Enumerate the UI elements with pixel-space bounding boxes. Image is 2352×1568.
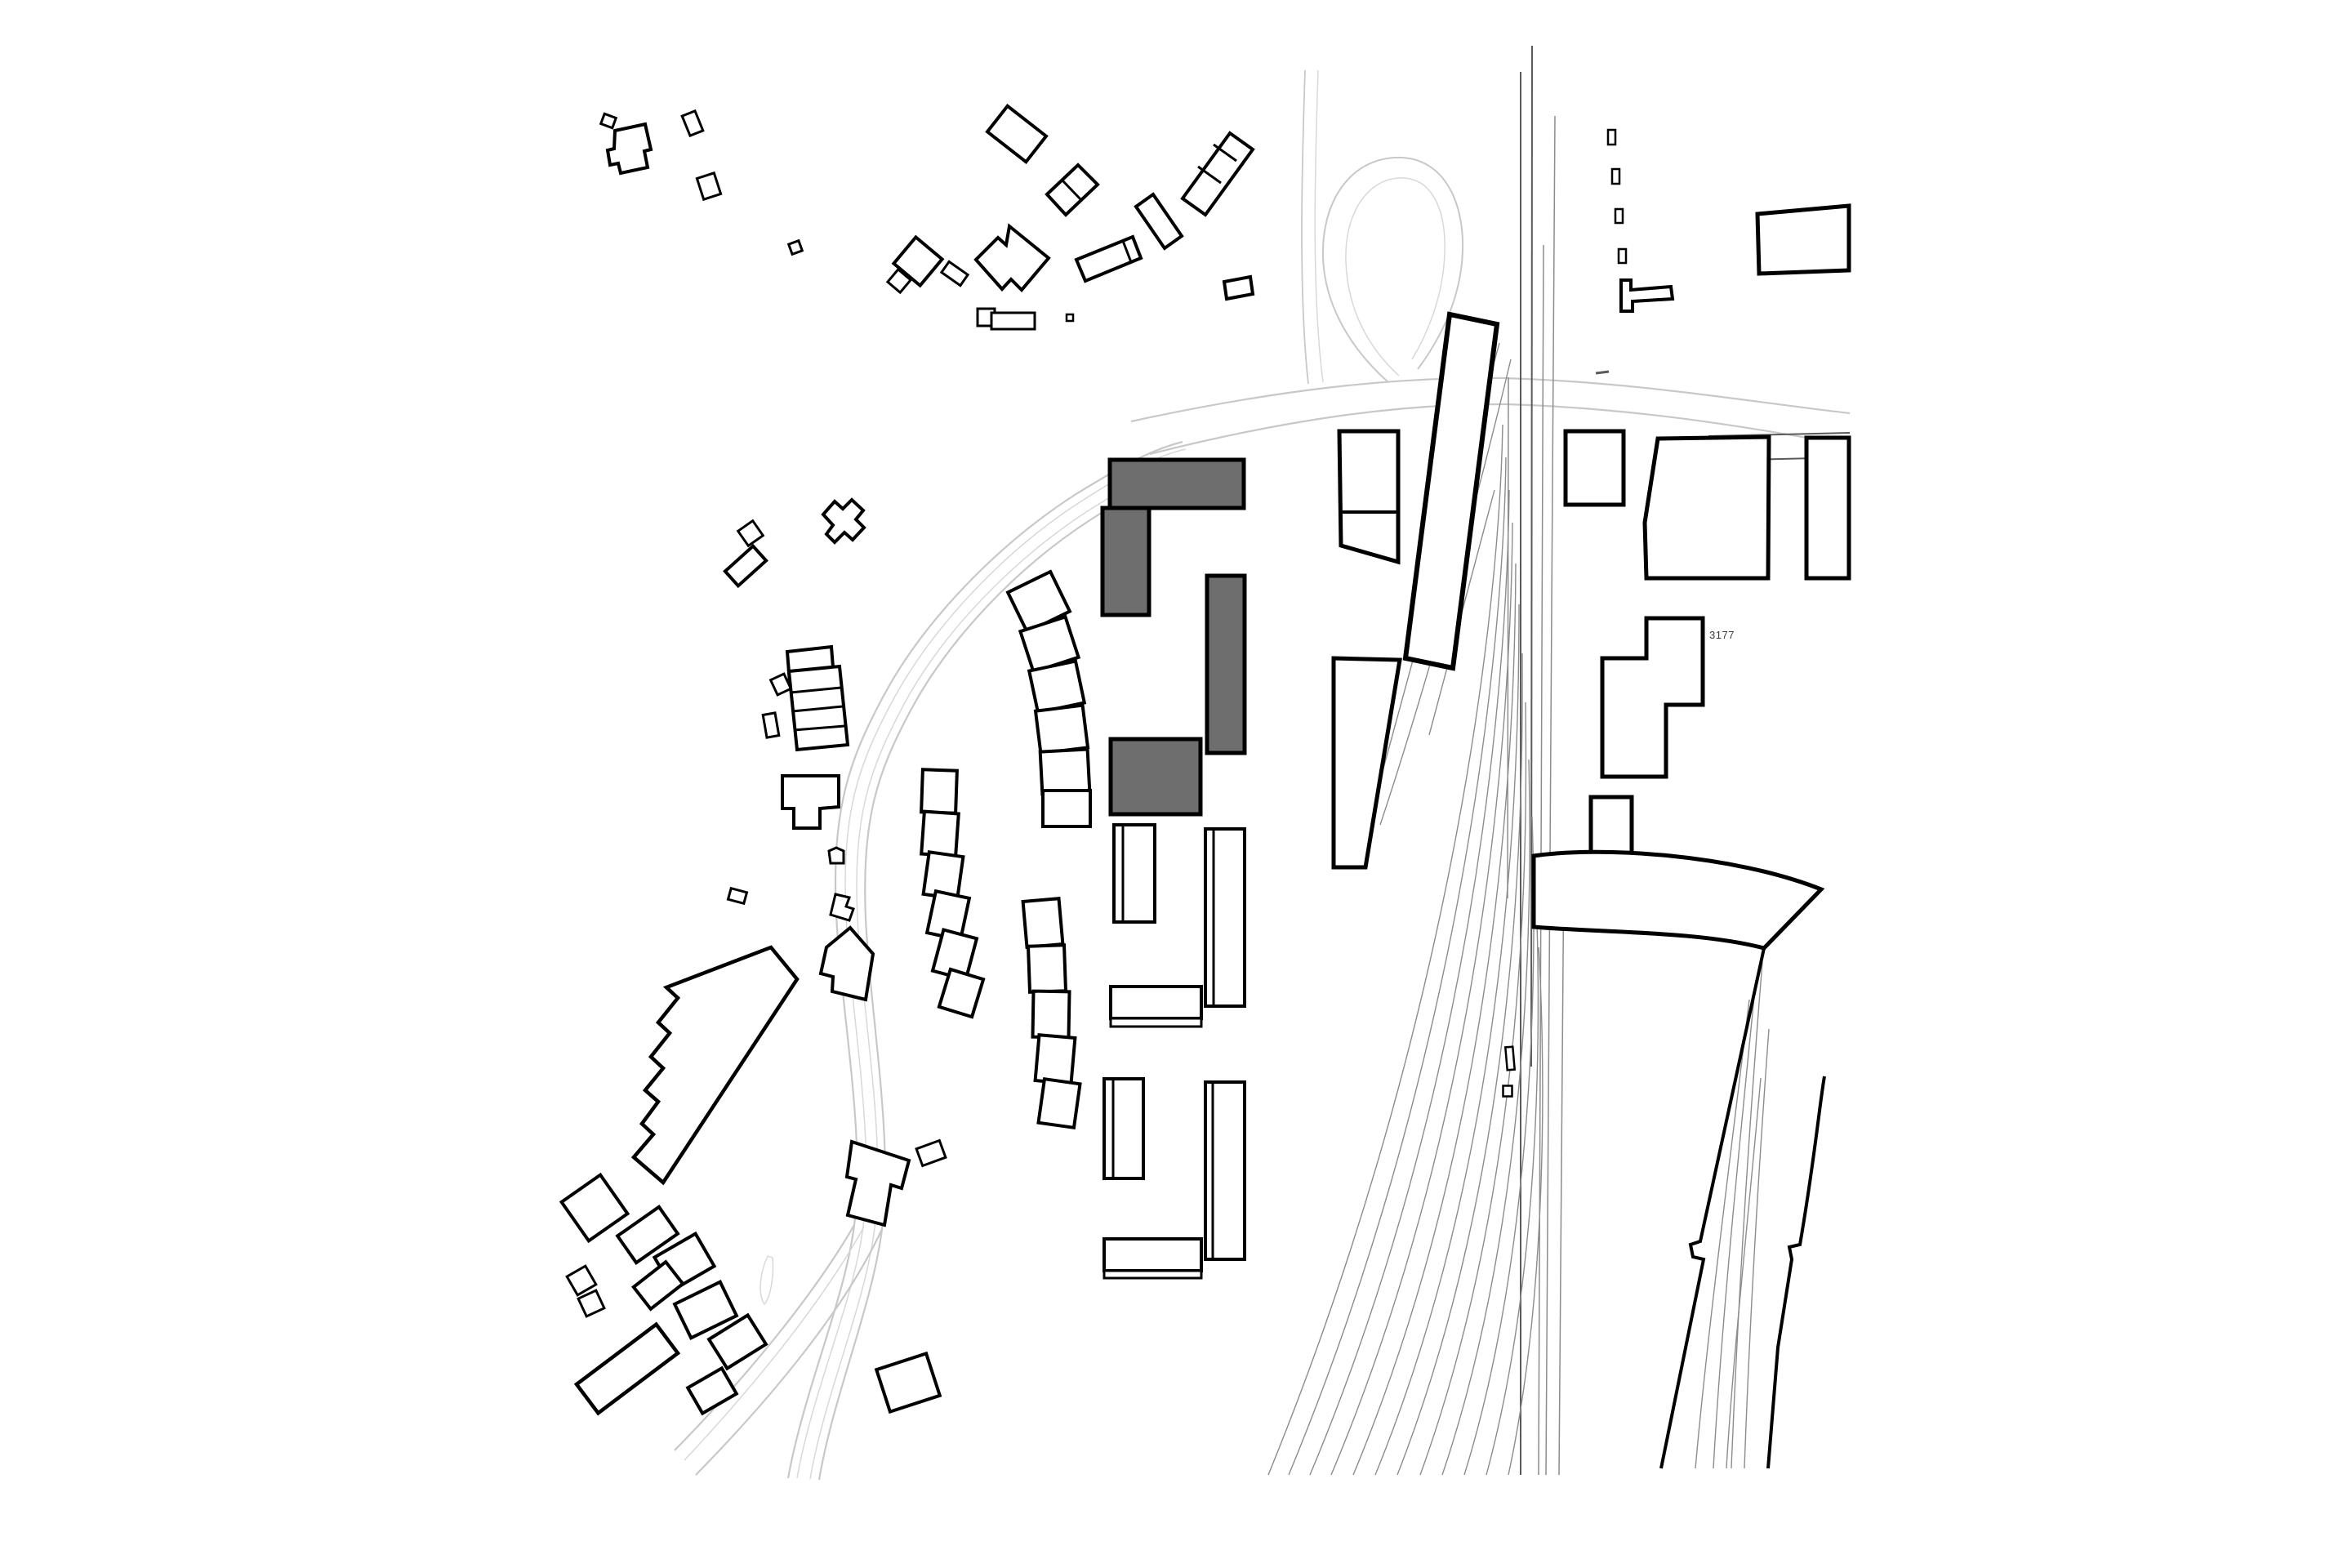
terrace-chain-a4 <box>1036 706 1088 754</box>
project-bar-south <box>1111 739 1200 814</box>
project-bar-north <box>1110 460 1244 508</box>
project-bar-west <box>1102 508 1149 615</box>
house-nw-5 <box>789 241 803 255</box>
house-nc-11 <box>1224 277 1253 299</box>
terrace-chain-c1 <box>1023 898 1063 947</box>
platform-block-upper <box>1339 431 1398 562</box>
terrace-chain-a5 <box>1040 750 1090 795</box>
rowhouse-strip-c <box>1111 1018 1201 1027</box>
rowhouse-bar-c <box>1111 987 1201 1018</box>
terrace-chain-b1 <box>921 769 957 813</box>
post-2 <box>1612 169 1619 184</box>
house-w-6 <box>728 889 747 904</box>
terrace-chain-c5 <box>1039 1079 1080 1128</box>
terrace-chain-c3 <box>1033 991 1070 1038</box>
parcel-label: 3177 <box>1709 629 1735 641</box>
house-nw-2 <box>608 124 651 173</box>
terrace-chain-a6 <box>1043 791 1090 826</box>
project-bar-east <box>1207 576 1245 753</box>
track-main-6 <box>1508 377 1508 898</box>
rowhouse-bar-d <box>1104 1079 1143 1178</box>
rowhouse-strip-f <box>1104 1271 1201 1278</box>
industrial-e-rect1 <box>1566 431 1624 505</box>
house-nw-1 <box>601 114 617 127</box>
house-w-4 <box>763 713 779 737</box>
house-w-5 <box>829 848 844 863</box>
trackside-mark-1 <box>1505 1047 1514 1071</box>
house-nc-8b <box>991 313 1035 329</box>
industrial-e-trap <box>1645 437 1769 578</box>
house-w-7 <box>831 894 853 920</box>
rowhouse-bar-e <box>1205 1082 1245 1259</box>
industrial-ne-big <box>1757 206 1849 274</box>
industrial-e-rect2 <box>1806 438 1849 578</box>
trackside-mark-2 <box>1503 1086 1512 1097</box>
house-nc-9 <box>1067 314 1073 321</box>
rowhouse-bar-f <box>1104 1239 1201 1271</box>
site-plan-page: 3177 <box>0 0 2352 1568</box>
terrace-chain-c2 <box>1028 945 1066 992</box>
post-4 <box>1619 249 1626 263</box>
post-1 <box>1608 130 1615 145</box>
terrace-chain-b2 <box>921 812 959 857</box>
site-plan-map: 3177 <box>0 0 2352 1568</box>
track-dash <box>1596 372 1609 373</box>
post-3 <box>1615 209 1623 223</box>
rowhouse-bar-b <box>1205 829 1245 1006</box>
terrace-chain-c4 <box>1036 1035 1076 1084</box>
rowhouse-bar-a <box>1114 825 1155 922</box>
